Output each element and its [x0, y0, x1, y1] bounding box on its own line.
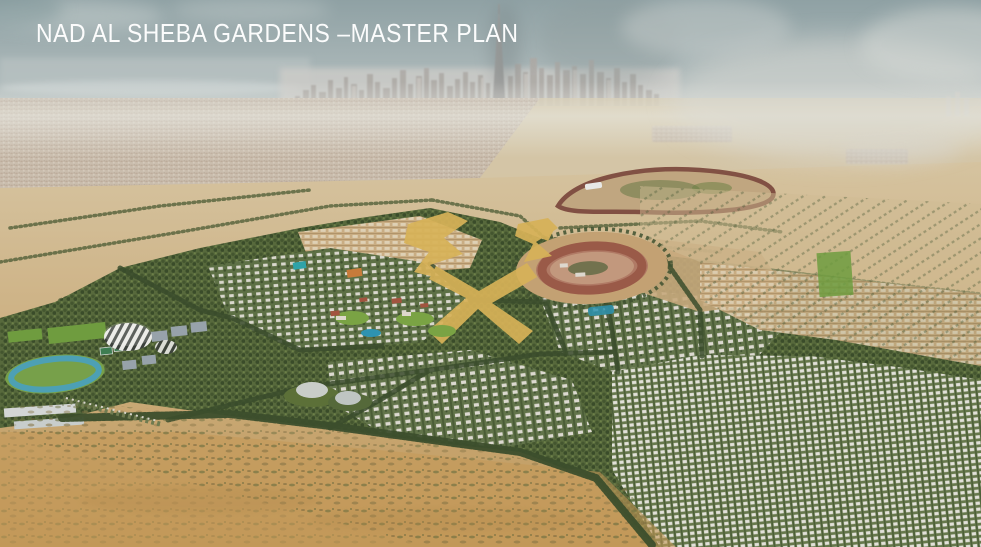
small-dome: [155, 340, 177, 354]
masterplan-screenshot: NAD AL SHEBA GARDENS –MASTER PLAN: [0, 0, 981, 547]
page-title: NAD AL SHEBA GARDENS –MASTER PLAN: [36, 20, 518, 49]
community-pool: [361, 329, 381, 337]
aerial-render: [0, 0, 981, 547]
southeast-villas: [612, 355, 981, 547]
green-field: [817, 251, 854, 297]
